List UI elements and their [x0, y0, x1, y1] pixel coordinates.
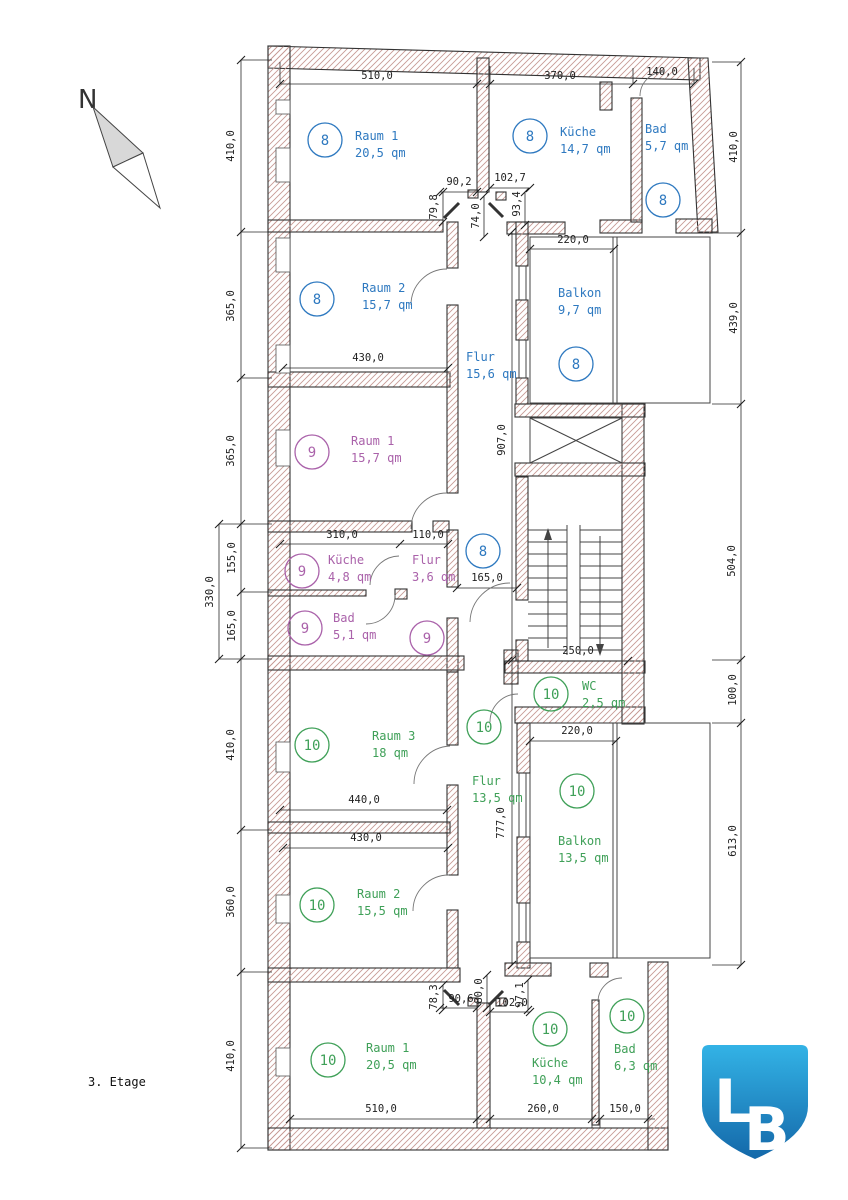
window-glazing	[519, 773, 526, 837]
room-area-label: 3,6 qm	[412, 570, 455, 584]
apartment-number: 9	[301, 621, 309, 637]
room-label: Balkon	[558, 834, 601, 848]
dimension-label: 310,0	[326, 529, 358, 541]
wall-segment	[631, 98, 642, 222]
room-area-label: 2,5 qm	[582, 696, 625, 710]
wall-niche	[276, 1048, 290, 1076]
apartment-number: 9	[423, 631, 431, 647]
room-area-label: 20,5 qm	[355, 146, 406, 160]
dimension-label: 80,0	[473, 978, 485, 1003]
dimension-label: 410,0	[225, 130, 237, 162]
thin-lines-layer	[519, 237, 710, 958]
wall-segment	[268, 372, 450, 387]
apartment-number: 10	[309, 898, 326, 914]
wall-segment	[477, 1003, 490, 1128]
balcony-8-divider	[613, 237, 617, 403]
dimension-label: 410,0	[225, 1040, 237, 1072]
wall-segment	[447, 222, 458, 268]
room-area-label: 13,5 qm	[472, 791, 523, 805]
wall-segment	[468, 190, 478, 198]
room-label: Bad	[614, 1042, 636, 1056]
dimension-label: 102,7	[494, 172, 526, 184]
wall-segment	[268, 968, 460, 982]
room-area-label: 15,5 qm	[357, 904, 408, 918]
room-label: Raum 1	[351, 434, 394, 448]
room-label: Küche	[532, 1056, 568, 1070]
dimension-label: 93,4	[511, 191, 523, 216]
dimension-label: 510,0	[365, 1103, 397, 1115]
dimension-label: 365,0	[225, 290, 237, 322]
dimension-label: 504,0	[726, 545, 738, 577]
dimension-label: 510,0	[361, 70, 393, 82]
dimension-label: 97,1	[514, 982, 526, 1007]
wall-segment	[447, 672, 458, 745]
wall-segment	[648, 962, 668, 1150]
dimension-label: 439,0	[728, 302, 740, 334]
wall-segment	[515, 463, 645, 476]
wall-segment	[477, 58, 489, 192]
wall-niche	[276, 148, 290, 182]
window-glazing	[519, 340, 526, 378]
floor-plan-page: N 8Raum 120,5 qm8Küche14,7 qm8Bad5,7 qm8…	[0, 0, 848, 1200]
room-area-label: 15,7 qm	[351, 451, 402, 465]
balcony-10-divider	[613, 723, 617, 958]
logo-letter-b: B	[744, 1095, 790, 1165]
apartment-number: 10	[542, 1022, 559, 1038]
apartment-number: 10	[476, 720, 493, 736]
room-label: Raum 1	[366, 1041, 409, 1055]
room-area-label: 9,7 qm	[558, 303, 601, 317]
room-area-label: 14,7 qm	[560, 142, 611, 156]
stair-treads	[528, 525, 622, 655]
apartment-number: 10	[569, 784, 586, 800]
wall-segment	[515, 404, 645, 417]
apartment-number: 8	[313, 292, 321, 308]
dimension-label: 430,0	[352, 352, 384, 364]
room-area-label: 18 qm	[372, 746, 408, 760]
apartment-number: 8	[479, 544, 487, 560]
dimension-label: 90,2	[446, 176, 471, 188]
room-area-label: 15,6 qm	[466, 367, 517, 381]
window-glazing	[519, 903, 526, 942]
apartment-number: 9	[298, 564, 306, 580]
wall-segment	[590, 963, 608, 977]
room-area-label: 5,1 qm	[333, 628, 376, 642]
room-label: WC	[582, 679, 596, 693]
balcony-8-outline	[530, 237, 710, 403]
room-label: Flur	[412, 553, 441, 567]
room-label: Raum 3	[372, 729, 415, 743]
wall-segment	[268, 46, 290, 1150]
dimension-label: 74,0	[470, 203, 482, 228]
room-label: Raum 2	[362, 281, 405, 295]
wall-niche	[276, 238, 290, 272]
dimension-label: 430,0	[350, 832, 382, 844]
dimension-label: 140,0	[646, 66, 678, 78]
staircase	[528, 525, 622, 656]
room-label: Bad	[333, 611, 355, 625]
apartment-number: 8	[659, 193, 667, 209]
dimension-label: 79,8	[428, 194, 440, 219]
dimension-label: 260,0	[527, 1103, 559, 1115]
room-label: Flur	[466, 350, 495, 364]
wall-segment	[516, 640, 528, 661]
apartment-number: 8	[526, 129, 534, 145]
wall-segment	[622, 404, 644, 724]
wall-segment	[516, 378, 528, 404]
wall-segment	[517, 837, 530, 903]
dimension-label: 100,0	[727, 674, 739, 706]
wall-segment	[517, 723, 530, 773]
room-area-label: 20,5 qm	[366, 1058, 417, 1072]
dimension-label: 410,0	[728, 131, 740, 163]
dimension-label: 155,0	[226, 542, 238, 574]
room-area-label: 13,5 qm	[558, 851, 609, 865]
apartment-number: 10	[543, 687, 560, 703]
wall-niche	[276, 430, 290, 466]
room-area-label: 5,7 qm	[645, 139, 688, 153]
room-area-label: 15,7 qm	[362, 298, 413, 312]
window-glazing	[519, 266, 526, 300]
wall-segment	[395, 589, 407, 599]
wall-segment	[268, 590, 366, 596]
lb-logo: L B	[702, 1045, 808, 1165]
wall-segment	[516, 477, 528, 600]
room-area-label: 10,4 qm	[532, 1073, 583, 1087]
room-area-label: 4,8 qm	[328, 570, 371, 584]
dimension-label: 220,0	[561, 725, 593, 737]
room-label: Raum 2	[357, 887, 400, 901]
dimension-label: 330,0	[204, 576, 216, 608]
floor-title: 3. Etage	[88, 1075, 146, 1089]
balcony-10-outline	[530, 723, 710, 958]
apartment-number: 10	[304, 738, 321, 754]
wall-niche	[276, 100, 290, 114]
floor-plan-drawing: N 8Raum 120,5 qm8Küche14,7 qm8Bad5,7 qm8…	[0, 0, 848, 1200]
dimension-label: 250,0	[562, 645, 594, 657]
room-label: Raum 1	[355, 129, 398, 143]
wall-segment	[268, 1128, 668, 1150]
dimension-label: 370,0	[544, 70, 576, 82]
wall-segment	[600, 82, 612, 110]
dimension-label: 78,3	[428, 984, 440, 1009]
room-label: Küche	[560, 125, 596, 139]
dimension-label: 165,0	[226, 610, 238, 642]
apartment-number: 8	[572, 357, 580, 373]
apartment-number: 10	[619, 1009, 636, 1025]
wall-segment	[592, 1000, 599, 1125]
dimension-label: 360,0	[225, 886, 237, 918]
room-label: Balkon	[558, 286, 601, 300]
wall-segment	[516, 300, 528, 340]
room-area-label: 6,3 qm	[614, 1059, 657, 1073]
room-label: Küche	[328, 553, 364, 567]
dimension-label: 110,0	[412, 529, 444, 541]
dimension-label: 440,0	[348, 794, 380, 806]
wall-segment	[676, 219, 712, 233]
wall-segment	[268, 656, 464, 670]
room-label: Bad	[645, 122, 667, 136]
apartment-number: 10	[320, 1053, 337, 1069]
dimension-label: 410,0	[225, 729, 237, 761]
dimension-label: 907,0	[496, 424, 508, 456]
wall-niche	[276, 345, 290, 373]
wall-niche	[276, 742, 290, 772]
dimension-label: 90,6	[448, 993, 473, 1005]
wall-niche	[276, 895, 290, 923]
apartment-number: 8	[321, 133, 329, 149]
dimension-label: 777,0	[495, 807, 507, 839]
wall-segment	[447, 305, 458, 493]
north-arrow: N	[78, 85, 160, 208]
wall-segment	[268, 220, 443, 232]
dimension-label: 220,0	[557, 234, 589, 246]
dimension-label: 165,0	[471, 572, 503, 584]
dimension-label: 365,0	[225, 435, 237, 467]
dimension-label: 150,0	[609, 1103, 641, 1115]
wall-segment	[496, 192, 506, 200]
apartment-number: 9	[308, 445, 316, 461]
room-label: Flur	[472, 774, 501, 788]
dimension-label: 613,0	[727, 825, 739, 857]
elevator-cross	[530, 418, 622, 463]
wall-segment	[447, 910, 458, 968]
